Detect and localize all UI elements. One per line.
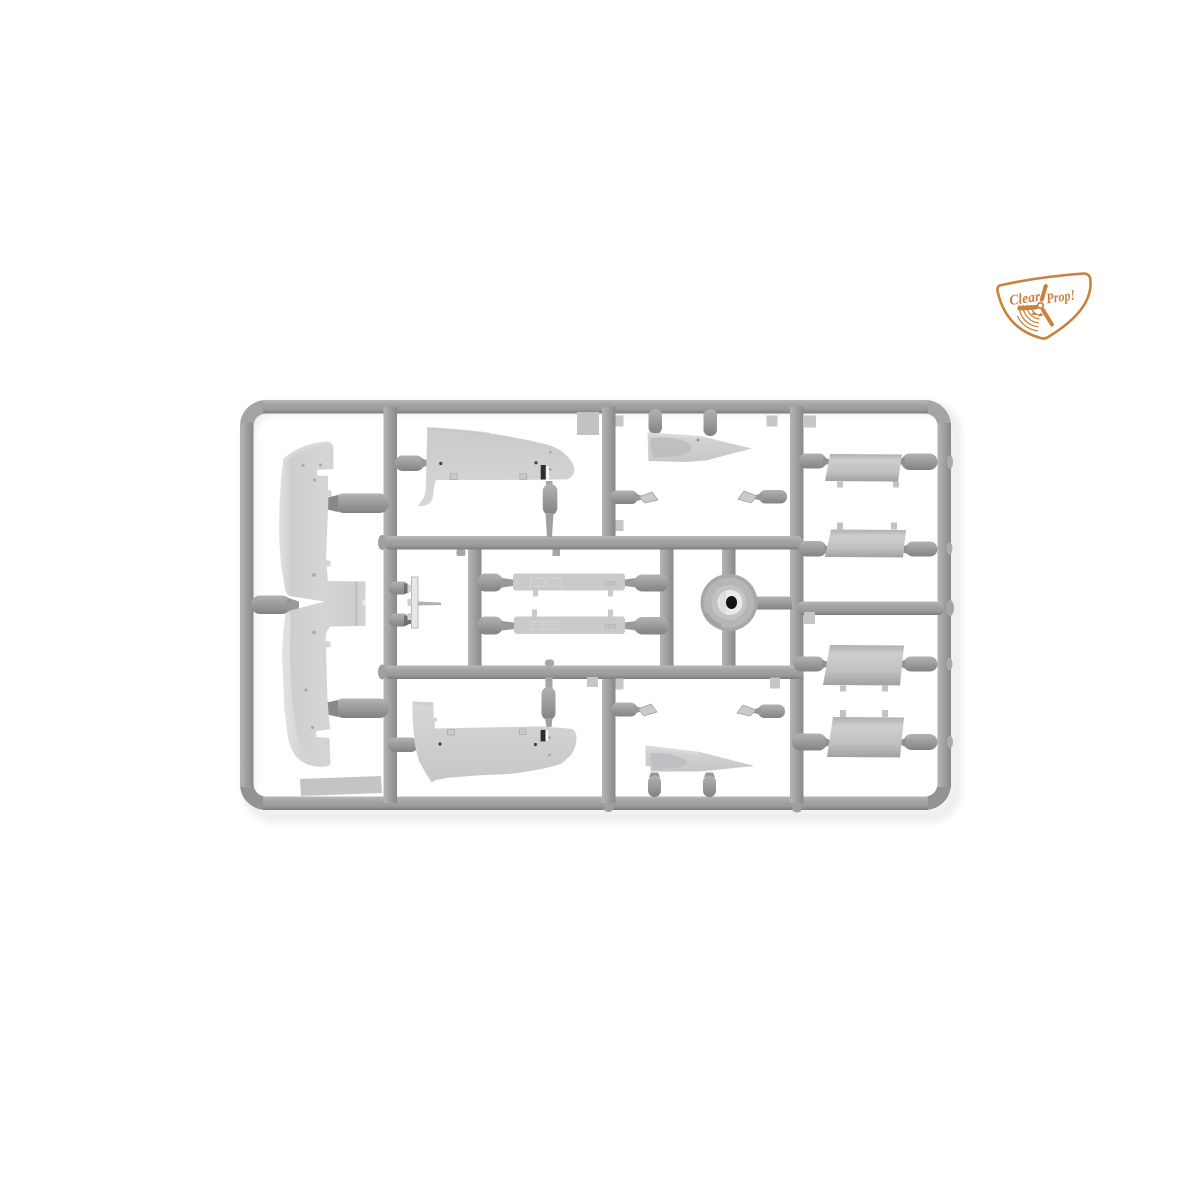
svg-text:2301: 2301 — [604, 582, 618, 588]
svg-text:2301: 2301 — [604, 625, 618, 631]
